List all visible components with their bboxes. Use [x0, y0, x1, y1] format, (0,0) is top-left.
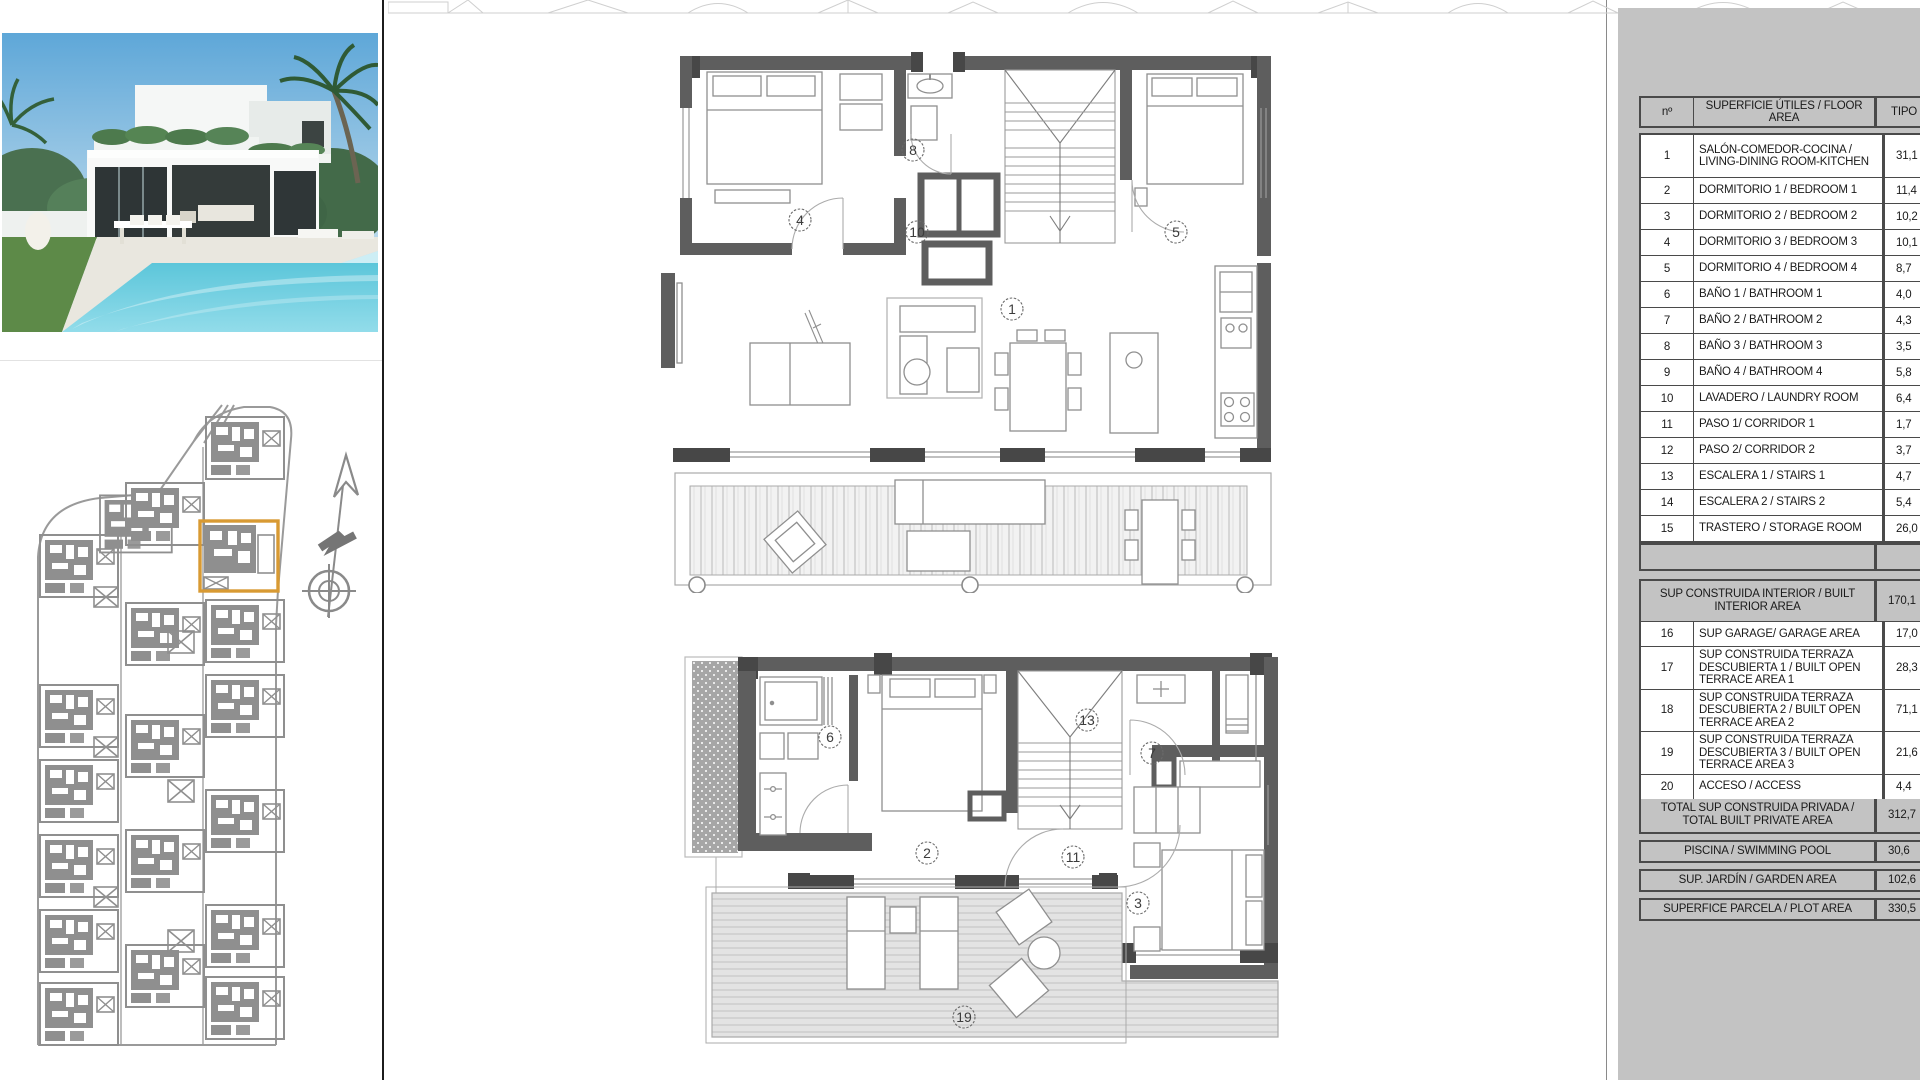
- row-value: 3,7: [1882, 438, 1920, 463]
- row-label: DORMITORIO 3 / BEDROOM 3: [1694, 230, 1882, 255]
- table-row: 6 BAÑO 1 / BATHROOM 1 4,0: [1641, 282, 1920, 308]
- row-label: SUP GARAGE/ GARAGE AREA: [1694, 622, 1882, 646]
- row-label: ESCALERA 1 / STAIRS 1: [1694, 464, 1882, 489]
- total-private-label: TOTAL SUP CONSTRUIDA PRIVADA / TOTAL BUI…: [1641, 799, 1874, 832]
- row-label: DORMITORIO 4 / BEDROOM 4: [1694, 256, 1882, 281]
- villa-photo-image: [2, 33, 378, 332]
- stairs-2: [1005, 70, 1115, 243]
- bedroom-2-furniture: [1134, 787, 1264, 951]
- table-row: 3 DORMITORIO 2 / BEDROOM 2 10,2: [1641, 204, 1920, 230]
- table-row: 4 DORMITORIO 3 / BEDROOM 3 10,1: [1641, 230, 1920, 256]
- table-row: 18 SUP CONSTRUIDA TERRAZA DESCUBIERTA 2 …: [1641, 690, 1920, 733]
- row-label: ESCALERA 2 / STAIRS 2: [1694, 490, 1882, 515]
- row-value: 4,7: [1882, 464, 1920, 489]
- row-label: DORMITORIO 2 / BEDROOM 2: [1694, 204, 1882, 229]
- pool-label: PISCINA / SWIMMING POOL: [1641, 842, 1874, 861]
- plot-area-label: SUPERFICE PARCELA / PLOT AREA: [1641, 900, 1874, 919]
- svg-text:5: 5: [1172, 224, 1180, 240]
- room-label-bedroom2: 3: [1127, 892, 1149, 914]
- room-label-bedroom1: 2: [916, 842, 938, 864]
- north-arrow-compass-icon: [302, 455, 358, 618]
- row-value: 26,0: [1882, 516, 1920, 541]
- rooms-rows-box: 1 SALÓN-COMEDOR-COCINA / LIVING-DINING R…: [1639, 133, 1920, 543]
- garden-label: SUP. JARDÍN / GARDEN AREA: [1641, 871, 1874, 890]
- site-plan: [8, 385, 370, 1080]
- svg-text:2: 2: [923, 845, 931, 861]
- row-number: 11: [1641, 412, 1694, 437]
- row-number: 8: [1641, 334, 1694, 359]
- svg-text:6: 6: [826, 729, 834, 745]
- row-number: 17: [1641, 647, 1694, 689]
- row-value: 5,8: [1882, 360, 1920, 385]
- row-label: BAÑO 1 / BATHROOM 1: [1694, 282, 1882, 307]
- upper-terrace: [675, 473, 1271, 593]
- row-label: ACCESO / ACCESS: [1694, 775, 1882, 799]
- plot-area-row: SUPERFICE PARCELA / PLOT AREA 330,5: [1639, 898, 1920, 921]
- row-label: BAÑO 2 / BATHROOM 2: [1694, 308, 1882, 333]
- row-value: 4,0: [1882, 282, 1920, 307]
- room-label-laundry: 10: [906, 221, 928, 243]
- built-area-box: SUP CONSTRUIDA INTERIOR / BUILT INTERIOR…: [1639, 579, 1920, 834]
- garden-value: 102,6: [1874, 871, 1920, 890]
- row-number: 7: [1641, 308, 1694, 333]
- pool-value: 30,6: [1874, 842, 1920, 861]
- row-value: 4,4: [1882, 775, 1920, 799]
- table-row: 7 BAÑO 2 / BATHROOM 2 4,3: [1641, 308, 1920, 334]
- room-label-corridor1: 11: [1062, 846, 1084, 868]
- total-private-row: TOTAL SUP CONSTRUIDA PRIVADA / TOTAL BUI…: [1641, 799, 1920, 832]
- header-number: nº: [1641, 98, 1694, 126]
- row-number: 12: [1641, 438, 1694, 463]
- floor-plan-lower: 6 2 13 7 11 3 19: [652, 645, 1292, 1055]
- bathroom-2-fixtures: [1137, 671, 1260, 787]
- architectural-sheet: 4 8 10 5 1: [0, 0, 1920, 1080]
- total-private-value: 312,7: [1874, 799, 1920, 832]
- interior-area-label: SUP CONSTRUIDA INTERIOR / BUILT INTERIOR…: [1641, 581, 1874, 621]
- row-number: 13: [1641, 464, 1694, 489]
- villa-photo: [2, 33, 378, 332]
- table-row: 5 DORMITORIO 4 / BEDROOM 4 8,7: [1641, 256, 1920, 282]
- table-row: 9 BAÑO 4 / BATHROOM 4 5,8: [1641, 360, 1920, 386]
- interior-area-value: 170,1: [1874, 581, 1920, 621]
- row-label: DORMITORIO 1 / BEDROOM 1: [1694, 178, 1882, 203]
- row-label: PASO 1/ CORRIDOR 1: [1694, 412, 1882, 437]
- row-value: 10,1: [1882, 230, 1920, 255]
- svg-text:10: 10: [909, 224, 925, 240]
- bedroom-4-furniture: [1135, 74, 1243, 206]
- row-label: BAÑO 3 / BATHROOM 3: [1694, 334, 1882, 359]
- row-number: 1: [1641, 135, 1694, 177]
- highlighted-plot: [200, 521, 278, 591]
- row-value: 28,3: [1882, 647, 1920, 689]
- row-number: 16: [1641, 622, 1694, 646]
- row-number: 6: [1641, 282, 1694, 307]
- table-header-row: nº SUPERFICIE ÚTILES / FLOOR AREA TIPO: [1639, 96, 1920, 128]
- row-label: SUP CONSTRUIDA TERRAZA DESCUBIERTA 3 / B…: [1694, 732, 1882, 774]
- row-label: PASO 2/ CORRIDOR 2: [1694, 438, 1882, 463]
- table-row: 12 PASO 2/ CORRIDOR 2 3,7: [1641, 438, 1920, 464]
- row-number: 18: [1641, 690, 1694, 732]
- row-number: 3: [1641, 204, 1694, 229]
- photo-underline: [0, 360, 382, 361]
- bedroom-3-furniture: [707, 72, 882, 203]
- table-row: 2 DORMITORIO 1 / BEDROOM 1 11,4: [1641, 178, 1920, 204]
- row-label: SALÓN-COMEDOR-COCINA / LIVING-DINING ROO…: [1694, 135, 1882, 177]
- svg-text:11: 11: [1066, 849, 1081, 865]
- living-room-furniture: [677, 266, 1257, 438]
- row-number: 2: [1641, 178, 1694, 203]
- table-row: 14 ESCALERA 2 / STAIRS 2 5,4: [1641, 490, 1920, 516]
- row-label: TRASTERO / STORAGE ROOM: [1694, 516, 1882, 541]
- row-value: 8,7: [1882, 256, 1920, 281]
- area-table-panel: nº SUPERFICIE ÚTILES / FLOOR AREA TIPO 1…: [1618, 8, 1920, 1080]
- table-row: 19 SUP CONSTRUIDA TERRAZA DESCUBIERTA 3 …: [1641, 732, 1920, 775]
- row-value: 10,2: [1882, 204, 1920, 229]
- svg-text:1: 1: [1008, 301, 1016, 317]
- row-value: 71,1: [1882, 690, 1920, 732]
- row-label: SUP CONSTRUIDA TERRAZA DESCUBIERTA 2 / B…: [1694, 690, 1882, 732]
- row-number: 15: [1641, 516, 1694, 541]
- row-label: SUP CONSTRUIDA TERRAZA DESCUBIERTA 1 / B…: [1694, 647, 1882, 689]
- table-row: 13 ESCALERA 1 / STAIRS 1 4,7: [1641, 464, 1920, 490]
- stairs-1: [1018, 671, 1122, 829]
- row-number: 5: [1641, 256, 1694, 281]
- row-value: 31,1: [1882, 135, 1920, 177]
- table-row: 20 ACCESO / ACCESS 4,4: [1641, 775, 1920, 799]
- garden-row: SUP. JARDÍN / GARDEN AREA 102,6: [1639, 869, 1920, 892]
- table-row: 11 PASO 1/ CORRIDOR 1 1,7: [1641, 412, 1920, 438]
- row-value: 6,4: [1882, 386, 1920, 411]
- svg-text:3: 3: [1134, 895, 1142, 911]
- row-value: 1,7: [1882, 412, 1920, 437]
- row-number: 4: [1641, 230, 1694, 255]
- row-value: 21,6: [1882, 732, 1920, 774]
- table-row: 17 SUP CONSTRUIDA TERRAZA DESCUBIERTA 1 …: [1641, 647, 1920, 690]
- header-tipo: TIPO: [1874, 98, 1920, 126]
- svg-text:8: 8: [909, 142, 917, 158]
- svg-text:4: 4: [796, 212, 804, 228]
- row-value: 11,4: [1882, 178, 1920, 203]
- room-label-terrace3: 19: [953, 1006, 975, 1028]
- bathroom-1-fixtures: [760, 677, 832, 835]
- table-row: 1 SALÓN-COMEDOR-COCINA / LIVING-DINING R…: [1641, 135, 1920, 178]
- table-row: 10 LAVADERO / LAUNDRY ROOM 6,4: [1641, 386, 1920, 412]
- bathroom-3-fixtures: [908, 74, 952, 140]
- vertical-divider-line: [382, 0, 384, 1080]
- svg-text:19: 19: [956, 1009, 972, 1025]
- floor-plan-upper: 4 8 10 5 1: [655, 48, 1287, 593]
- floor-area-table: nº SUPERFICIE ÚTILES / FLOOR AREA TIPO 1…: [1639, 96, 1920, 921]
- table-row: 8 BAÑO 3 / BATHROOM 3 3,5: [1641, 334, 1920, 360]
- storage-cells: [921, 176, 997, 282]
- pool-row: PISCINA / SWIMMING POOL 30,6: [1639, 840, 1920, 863]
- room-label-stairs1: 13: [1076, 709, 1098, 731]
- row-value: 17,0: [1882, 622, 1920, 646]
- row-number: 9: [1641, 360, 1694, 385]
- table-row: 15 TRASTERO / STORAGE ROOM 26,0: [1641, 516, 1920, 541]
- row-value: 4,3: [1882, 308, 1920, 333]
- row-label: BAÑO 4 / BATHROOM 4: [1694, 360, 1882, 385]
- row-value: 5,4: [1882, 490, 1920, 515]
- row-label: LAVADERO / LAUNDRY ROOM: [1694, 386, 1882, 411]
- svg-text:7: 7: [1148, 745, 1156, 761]
- interior-area-row: SUP CONSTRUIDA INTERIOR / BUILT INTERIOR…: [1641, 581, 1920, 622]
- row-number: 19: [1641, 732, 1694, 774]
- row-number: 10: [1641, 386, 1694, 411]
- room-label-bathroom1: 6: [819, 726, 841, 748]
- row-value: 3,5: [1882, 334, 1920, 359]
- row-number: 20: [1641, 775, 1694, 799]
- bedroom-1-furniture: [868, 675, 1004, 819]
- built-rows: 16 SUP GARAGE/ GARAGE AREA 17,0 17 SUP C…: [1641, 622, 1920, 799]
- header-floor-area: SUPERFICIE ÚTILES / FLOOR AREA: [1694, 98, 1874, 126]
- room-label-living: 1: [1001, 298, 1023, 320]
- svg-text:13: 13: [1079, 712, 1095, 728]
- table-row: 16 SUP GARAGE/ GARAGE AREA 17,0: [1641, 622, 1920, 647]
- right-divider-line: [1606, 0, 1607, 1080]
- row-number: 14: [1641, 490, 1694, 515]
- plot-area-value: 330,5: [1874, 900, 1920, 919]
- empty-spacer-row: [1639, 543, 1920, 571]
